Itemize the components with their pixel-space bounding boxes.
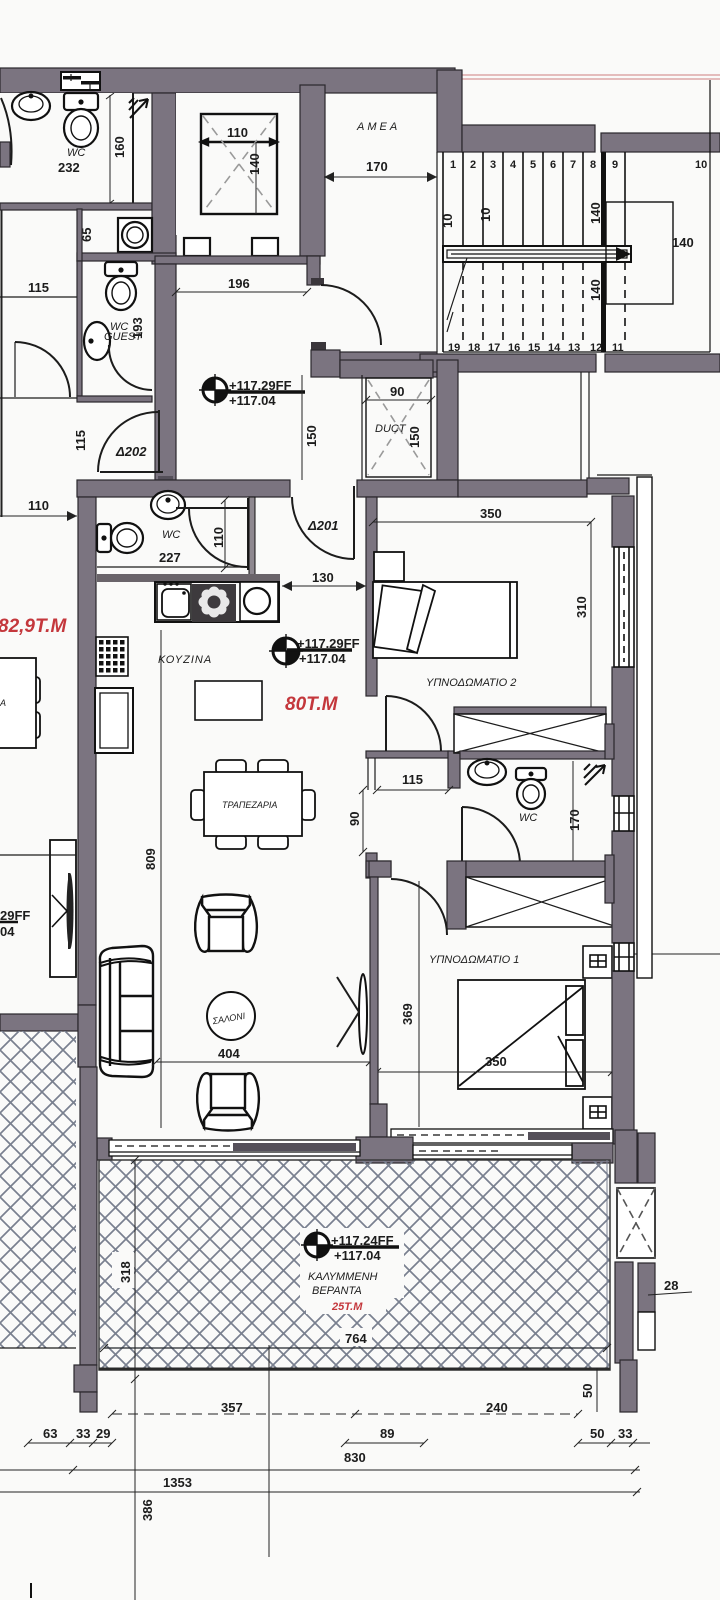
svg-text:89: 89	[380, 1426, 394, 1441]
svg-text:7: 7	[570, 159, 576, 171]
svg-text:19: 19	[448, 342, 460, 354]
svg-text:110: 110	[211, 527, 226, 548]
svg-text:140: 140	[588, 202, 603, 224]
svg-text:16: 16	[508, 342, 520, 354]
svg-text:1: 1	[450, 159, 456, 171]
svg-text:140: 140	[672, 235, 694, 250]
svg-text:Δ201: Δ201	[307, 518, 338, 533]
svg-text:115: 115	[402, 772, 423, 787]
svg-text:15: 15	[528, 342, 540, 354]
svg-text:809: 809	[143, 848, 158, 870]
svg-text:196: 196	[228, 276, 250, 291]
svg-text:11: 11	[612, 342, 624, 354]
svg-text:ΒΕΡΑΝΤΑ: ΒΕΡΑΝΤΑ	[312, 1285, 362, 1297]
svg-text:369: 369	[400, 1003, 415, 1025]
svg-text:140: 140	[247, 153, 262, 175]
svg-text:170: 170	[366, 159, 388, 174]
svg-text:115: 115	[28, 280, 49, 295]
svg-text:350: 350	[480, 506, 502, 521]
svg-text:193: 193	[130, 317, 145, 339]
svg-text:4: 4	[510, 159, 517, 171]
svg-text:WC: WC	[162, 529, 180, 541]
svg-text:+117.04: +117.04	[299, 651, 346, 666]
svg-text:310: 310	[574, 596, 589, 618]
svg-text:90: 90	[347, 812, 362, 826]
svg-text:140: 140	[588, 279, 603, 301]
svg-text:14: 14	[548, 342, 561, 354]
svg-text:33: 33	[76, 1426, 90, 1441]
svg-text:04: 04	[0, 924, 15, 939]
svg-text:240: 240	[486, 1400, 508, 1415]
svg-text:232: 232	[58, 160, 80, 175]
svg-text:10: 10	[695, 159, 707, 171]
svg-text:63: 63	[43, 1426, 57, 1441]
svg-text:357: 357	[221, 1400, 243, 1415]
svg-text:160: 160	[112, 136, 127, 158]
svg-text:+117.04: +117.04	[334, 1248, 381, 1263]
svg-text:110: 110	[227, 125, 248, 140]
svg-text:82,9Τ.Μ: 82,9Τ.Μ	[0, 616, 67, 637]
svg-text:130: 130	[312, 570, 334, 585]
svg-text:28: 28	[664, 1278, 678, 1293]
svg-text:50: 50	[580, 1384, 595, 1398]
svg-text:80Τ.Μ: 80Τ.Μ	[285, 694, 339, 715]
svg-text:ΥΠΝΟΔΩΜΑΤΙΟ 2: ΥΠΝΟΔΩΜΑΤΙΟ 2	[426, 677, 516, 689]
svg-text:227: 227	[159, 550, 181, 565]
svg-text:830: 830	[344, 1450, 366, 1465]
svg-text:404: 404	[218, 1046, 240, 1061]
svg-text:50: 50	[590, 1426, 604, 1441]
svg-text:5: 5	[530, 159, 536, 171]
svg-text:150: 150	[407, 426, 422, 448]
svg-text:13: 13	[568, 342, 580, 354]
svg-text:WC: WC	[519, 812, 537, 824]
svg-text:170: 170	[567, 809, 582, 831]
svg-text:ΤΡΑΠΕΖΑΡΙΑ: ΤΡΑΠΕΖΑΡΙΑ	[222, 800, 277, 810]
svg-text:Α: Α	[0, 698, 6, 708]
svg-text:+117.04: +117.04	[229, 393, 276, 408]
svg-text:ΥΠΝΟΔΩΜΑΤΙΟ 1: ΥΠΝΟΔΩΜΑΤΙΟ 1	[429, 954, 519, 966]
svg-text:8: 8	[590, 159, 596, 171]
svg-text:350: 350	[485, 1054, 507, 1069]
svg-text:17: 17	[488, 342, 500, 354]
svg-text:12: 12	[590, 342, 602, 354]
svg-text:18: 18	[468, 342, 480, 354]
svg-text:764: 764	[345, 1331, 367, 1346]
svg-text:25Τ.Μ: 25Τ.Μ	[331, 1301, 363, 1313]
svg-text:29: 29	[96, 1426, 110, 1441]
svg-text:2: 2	[470, 159, 476, 171]
svg-text:90: 90	[390, 384, 404, 399]
svg-text:ΚΑΛΥΜΜΕΝΗ: ΚΑΛΥΜΜΕΝΗ	[308, 1271, 378, 1283]
svg-text:33: 33	[618, 1426, 632, 1441]
svg-text:9: 9	[612, 159, 618, 171]
svg-text:DUCT: DUCT	[375, 423, 407, 435]
svg-text:ΚΟΥΖΙΝΑ: ΚΟΥΖΙΝΑ	[158, 654, 212, 666]
svg-text:110: 110	[28, 498, 49, 513]
svg-text:AMEA: AMEA	[356, 121, 400, 133]
svg-text:WC: WC	[67, 147, 85, 159]
svg-text:318: 318	[118, 1261, 133, 1283]
svg-text:3: 3	[490, 159, 496, 171]
svg-text:115: 115	[73, 430, 88, 451]
svg-text:10: 10	[478, 208, 493, 222]
svg-text:6: 6	[550, 159, 556, 171]
svg-text:Δ202: Δ202	[115, 444, 147, 459]
svg-text:10: 10	[440, 214, 455, 228]
svg-text:150: 150	[304, 425, 319, 447]
svg-text:386: 386	[140, 1499, 155, 1521]
svg-text:1353: 1353	[163, 1475, 192, 1490]
